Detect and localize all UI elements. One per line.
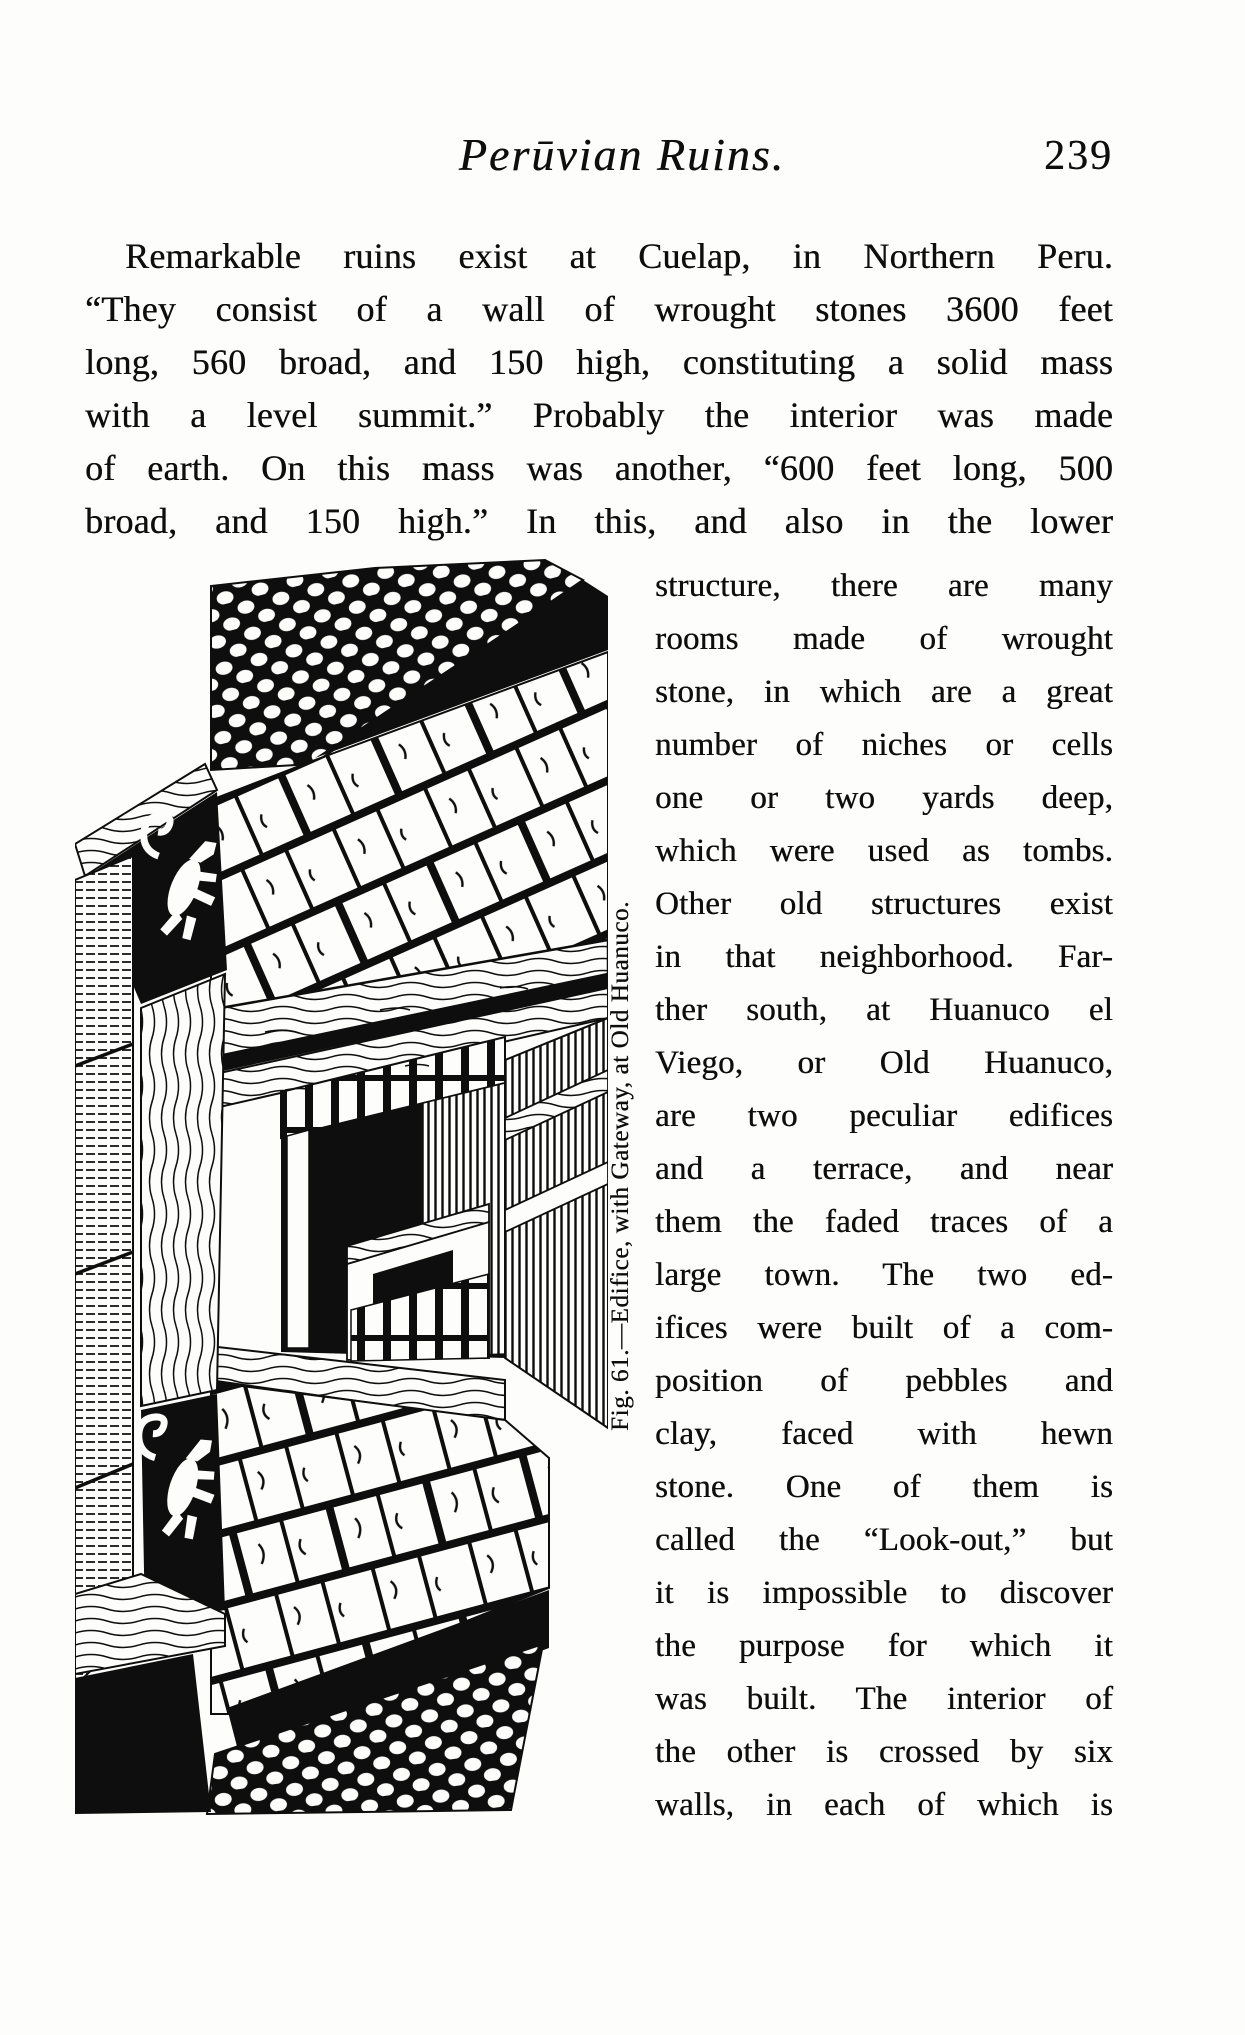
page-number: 239: [1044, 132, 1113, 180]
running-head: Perūvian Ruins. 239: [85, 128, 1113, 186]
column-line: them the faded traces of a: [655, 1196, 1113, 1249]
column-line: which were used as tombs.: [655, 825, 1113, 878]
body-line: “They consist of a wall of wrought stone…: [85, 283, 1113, 336]
column-line: clay, faced with hewn: [655, 1408, 1113, 1461]
figure-caption: Fig. 61.—Edifice, with Gateway, at Old H…: [607, 856, 637, 1476]
book-page: Perūvian Ruins. 239 Remarkable ruins exi…: [0, 0, 1245, 2035]
column-line: in that neighborhood. Far-: [655, 931, 1113, 984]
column-line: structure, there are many: [655, 560, 1113, 613]
column-line: Viego, or Old Huanuco,: [655, 1037, 1113, 1090]
shadow-wedge: [75, 1654, 211, 1814]
body-line: Remarkable ruins exist at Cuelap, in Nor…: [85, 230, 1113, 283]
column-line: position of pebbles and: [655, 1355, 1113, 1408]
column-line: stone, in which are a great: [655, 666, 1113, 719]
column-line: Other old structures exist: [655, 878, 1113, 931]
column-line: the other is crossed by six: [655, 1726, 1113, 1779]
column-line: it is impossible to discover: [655, 1567, 1113, 1620]
column-line: number of niches or cells: [655, 719, 1113, 772]
column-line: stone. One of them is: [655, 1461, 1113, 1514]
column-line: large town. The two ed-: [655, 1249, 1113, 1302]
column-line: called the “Look-out,” but: [655, 1514, 1113, 1567]
column-line: walls, in each of which is: [655, 1779, 1113, 1832]
column-line: was built. The interior of: [655, 1673, 1113, 1726]
body-line: long, 560 broad, and 150 high, constitut…: [85, 336, 1113, 389]
column-line: ifices were built of a com-: [655, 1302, 1113, 1355]
column-line: are two peculiar edifices: [655, 1090, 1113, 1143]
paragraph-column: structure, there are many rooms made of …: [655, 560, 1113, 1832]
column-line: one or two yards deep,: [655, 772, 1113, 825]
figure-engraving: [75, 558, 608, 1816]
page-title: Perūvian Ruins.: [459, 128, 785, 181]
body-line: broad, and 150 high.” In this, and also …: [85, 495, 1113, 548]
column-line: ther south, at Huanuco el: [655, 984, 1113, 1037]
jamb-slab: [141, 974, 225, 1406]
column-line: the purpose for which it: [655, 1620, 1113, 1673]
paragraph-top: Remarkable ruins exist at Cuelap, in Nor…: [85, 230, 1113, 548]
body-line: of earth. On this mass was another, “600…: [85, 442, 1113, 495]
body-line: with a level summit.” Probably the inter…: [85, 389, 1113, 442]
column-line: rooms made of wrought: [655, 613, 1113, 666]
column-line: and a terrace, and near: [655, 1143, 1113, 1196]
